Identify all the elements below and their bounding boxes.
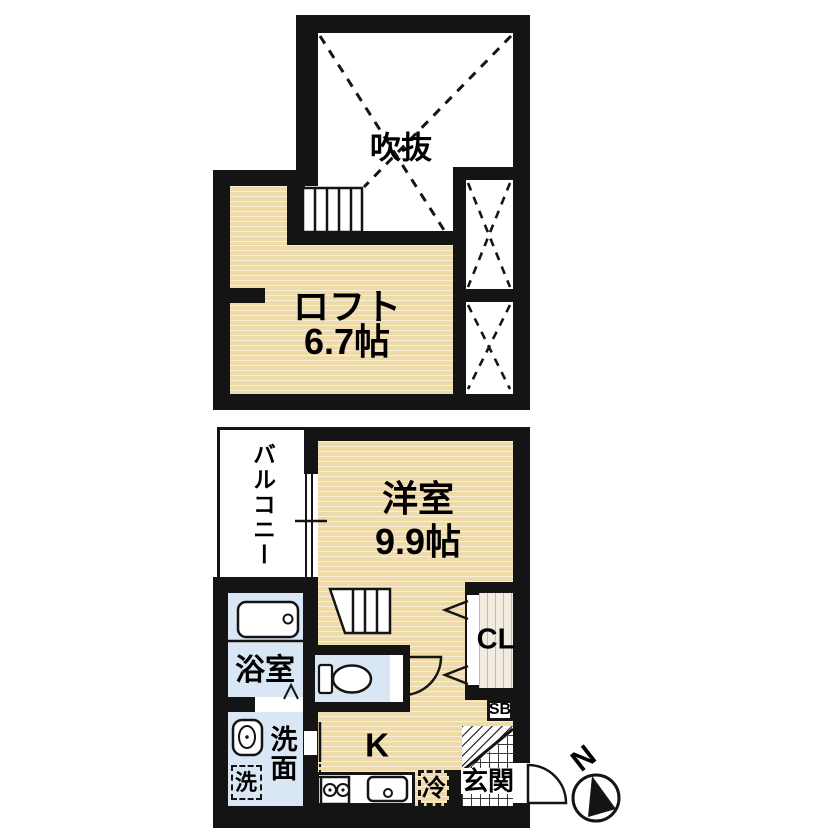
floor-plan: 吹抜 ロフト 6.7帖 洋室 9.9帖 バルコニー 浴室 洗面 洗 K 冷 玄関… [0, 0, 840, 840]
north-compass-icon [573, 775, 619, 821]
western-room-label: 洋室 [382, 481, 454, 517]
closet-label: CL [477, 626, 516, 655]
wall [466, 289, 513, 302]
wall [213, 806, 530, 828]
shoebox-label: SB [489, 702, 511, 718]
front-door-gap [513, 763, 528, 803]
wall [287, 231, 453, 245]
wall [228, 697, 255, 712]
void-box-cross-upper [468, 183, 510, 287]
wall-stub [230, 288, 265, 303]
wall [300, 427, 530, 441]
wall [213, 580, 308, 593]
wall [296, 15, 318, 186]
wall [213, 577, 228, 828]
washer-label: 洗 [235, 772, 257, 794]
bath-label: 浴室 [235, 656, 295, 686]
void-box-cross-lower [468, 305, 510, 389]
toilet-doorway [390, 655, 403, 702]
washroom-doorway [304, 731, 317, 755]
wall [513, 427, 530, 763]
wall [213, 170, 230, 410]
kitchen-label: K [365, 729, 389, 762]
balcony-label: バルコニー [251, 443, 274, 568]
front-door-swing [528, 765, 566, 803]
loft-size-label: 6.7帖 [304, 324, 390, 360]
kitchen-counter [316, 772, 415, 806]
window-opening [302, 474, 318, 577]
western-room-size-label: 9.9帖 [375, 524, 461, 560]
wall [296, 15, 530, 33]
wall [213, 394, 530, 410]
atrium-label: 吹抜 [370, 133, 432, 164]
wall [513, 15, 530, 410]
wall [287, 186, 305, 232]
toilet-room [315, 655, 390, 702]
bathroom-doorway [255, 697, 303, 712]
fridge-label: 冷 [422, 777, 446, 801]
washroom-label: 洗面 [268, 725, 295, 783]
loft-label: ロフト [293, 289, 401, 325]
north-label: N [566, 741, 602, 778]
wall [453, 167, 530, 180]
loft-floor-strip [230, 186, 287, 245]
entrance-label: 玄関 [461, 768, 515, 794]
wall [453, 167, 466, 394]
loft-stairs [303, 188, 362, 232]
